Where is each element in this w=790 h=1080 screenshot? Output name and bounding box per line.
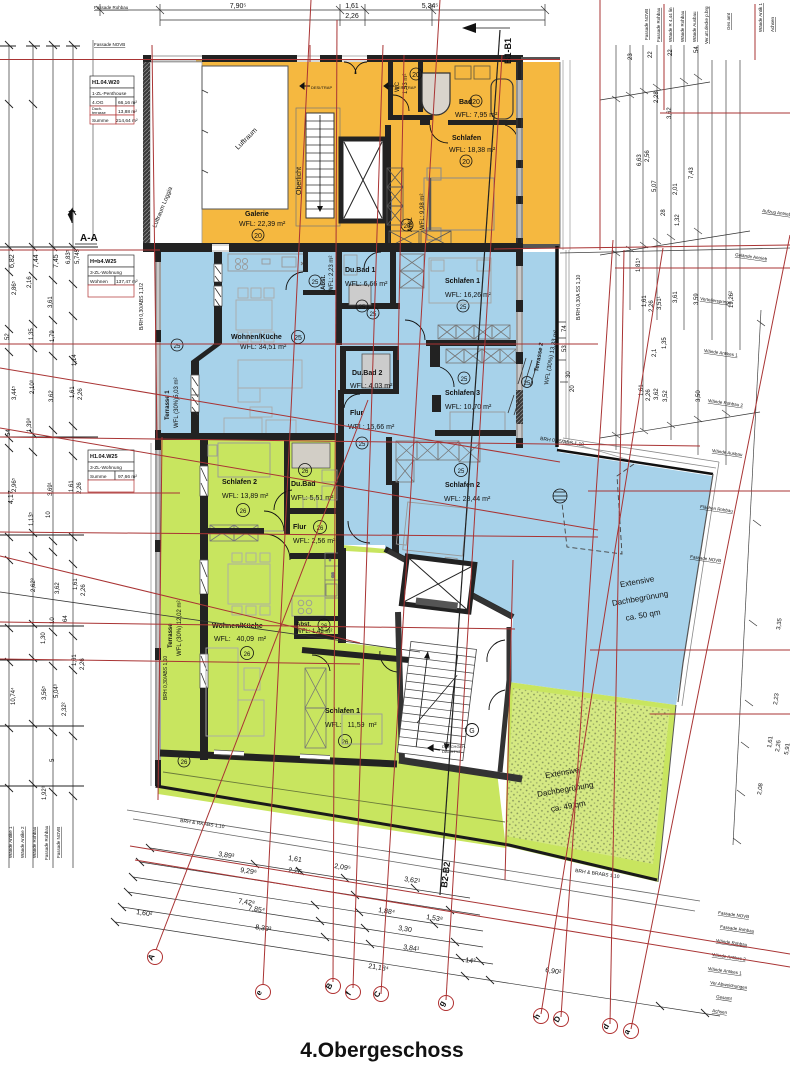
svg-text:97,66 m²: 97,66 m² xyxy=(118,474,137,480)
svg-text:WFL: 9,98 m²: WFL: 9,98 m² xyxy=(420,194,426,230)
svg-text:2,26: 2,26 xyxy=(345,13,359,20)
svg-text:28: 28 xyxy=(661,209,667,216)
svg-text:WFL: 22,39 m²: WFL: 22,39 m² xyxy=(239,221,286,228)
svg-text:3,44⁵: 3,44⁵ xyxy=(11,385,18,400)
svg-text:WFL: 11,59 m²: WFL: 11,59 m² xyxy=(325,722,377,729)
svg-text:1,39⁸: 1,39⁸ xyxy=(26,417,33,432)
svg-text:1,61: 1,61 xyxy=(69,480,75,492)
svg-text:5,04⁹: 5,04⁹ xyxy=(53,683,60,698)
svg-text:B1-B1: B1-B1 xyxy=(503,38,513,64)
svg-text:3,50: 3,50 xyxy=(696,390,702,402)
svg-text:26: 26 xyxy=(240,509,247,515)
svg-text:Abst.: Abst. xyxy=(321,275,327,290)
svg-text:Fassade Rohbau: Fassade Rohbau xyxy=(656,7,661,42)
svg-text:3,56⁵: 3,56⁵ xyxy=(41,685,48,700)
svg-text:25: 25 xyxy=(312,280,319,286)
svg-text:Galerie: Galerie xyxy=(245,211,269,218)
svg-text:3-ZL-Wohnung: 3-ZL-Wohnung xyxy=(90,465,122,471)
svg-text:Terrasse: Terrasse xyxy=(168,623,174,648)
svg-text:2,56: 2,56 xyxy=(645,150,651,162)
svg-text:G: G xyxy=(469,728,474,735)
svg-text:25: 25 xyxy=(458,469,465,475)
svg-text:6,82: 6,82 xyxy=(9,254,16,268)
svg-text:WFL: 10,70 m²: WFL: 10,70 m² xyxy=(445,404,492,411)
svg-text:Wände Antike 2: Wände Antike 2 xyxy=(20,826,25,858)
svg-text:20: 20 xyxy=(404,224,411,230)
svg-text:Schlafen: Schlafen xyxy=(452,135,481,142)
svg-text:Wände Rohbau: Wände Rohbau xyxy=(32,826,37,858)
svg-text:Du.Bad: Du.Bad xyxy=(291,481,316,488)
svg-text:Wände Rohbau: Wände Rohbau xyxy=(680,10,685,42)
svg-text:Flur: Flur xyxy=(293,524,306,531)
svg-text:WFL: 2,23 m²: WFL: 2,23 m² xyxy=(329,256,335,292)
svg-text:20: 20 xyxy=(570,385,576,392)
svg-text:Du.Bad 2: Du.Bad 2 xyxy=(352,370,382,377)
svg-text:26: 26 xyxy=(244,652,251,658)
svg-text:Fassade NOVB: Fassade NOVB xyxy=(94,42,125,47)
svg-text:DESI/TRAP: DESI/TRAP xyxy=(395,85,416,90)
svg-text:7,90⁵: 7,90⁵ xyxy=(230,3,247,10)
svg-text:B/RH 0,30A SS 1,10: B/RH 0,30A SS 1,10 xyxy=(576,274,582,320)
svg-text:2,10⁹: 2,10⁹ xyxy=(29,379,36,394)
svg-text:WFL: 16,26 m²: WFL: 16,26 m² xyxy=(445,292,492,299)
svg-text:66,16 m²: 66,16 m² xyxy=(118,100,137,106)
svg-text:H1.04.W25: H1.04.W25 xyxy=(90,454,118,460)
svg-text:1,61: 1,61 xyxy=(345,3,359,10)
svg-text:20: 20 xyxy=(472,99,480,106)
svg-text:1,14: 1,14 xyxy=(72,354,78,366)
svg-text:5,745: 5,745 xyxy=(75,248,81,264)
svg-text:WFL (30%) 12,02 m²: WFL (30%) 12,02 m² xyxy=(177,601,183,656)
svg-text:3,61: 3,61 xyxy=(673,291,679,303)
svg-text:26: 26 xyxy=(181,760,188,766)
svg-text:WFL (30%)5,03 m²: WFL (30%)5,03 m² xyxy=(174,378,180,428)
svg-text:WFL: 4,03 m²: WFL: 4,03 m² xyxy=(350,383,393,390)
svg-text:137,47 m²: 137,47 m² xyxy=(116,279,138,285)
svg-text:1,61: 1,61 xyxy=(73,578,79,590)
svg-text:1,81⁵: 1,81⁵ xyxy=(635,257,642,272)
svg-text:WFL: 6,66 m²: WFL: 6,66 m² xyxy=(345,281,388,288)
svg-text:1,32: 1,32 xyxy=(675,214,681,226)
svg-text:*: * xyxy=(329,559,331,565)
svg-text:Schlafen 2: Schlafen 2 xyxy=(445,482,480,489)
svg-text:B/RH 0,30/ABS 1,1/2: B/RH 0,30/ABS 1,1/2 xyxy=(139,283,145,330)
svg-text:25: 25 xyxy=(359,305,366,311)
svg-text:5,91: 5,91 xyxy=(784,742,790,755)
svg-text:2,1: 2,1 xyxy=(652,348,658,357)
svg-text:52: 52 xyxy=(5,333,11,340)
svg-text:22: 22 xyxy=(668,49,674,56)
svg-text:WFL: 5,51 m²: WFL: 5,51 m² xyxy=(291,495,334,502)
svg-text:6,63: 6,63 xyxy=(637,154,643,166)
svg-text:1,35: 1,35 xyxy=(662,337,668,349)
svg-text:4.OG: 4.OG xyxy=(92,100,104,106)
svg-text:10: 10 xyxy=(46,511,52,518)
svg-text:20: 20 xyxy=(412,72,420,79)
svg-text:7,44: 7,44 xyxy=(33,254,40,268)
svg-text:DESI/TRAP: DESI/TRAP xyxy=(311,85,332,90)
svg-text:1-ZL-Penthouse: 1-ZL-Penthouse xyxy=(92,91,127,97)
svg-text:2,96⁵: 2,96⁵ xyxy=(11,477,18,492)
svg-text:Schlafen 1: Schlafen 1 xyxy=(445,278,480,285)
svg-text:3,51¹: 3,51¹ xyxy=(657,296,663,310)
svg-text:WFL: 40,09 m²: WFL: 40,09 m² xyxy=(214,636,267,643)
svg-text:2,32²: 2,32² xyxy=(62,702,68,716)
svg-text:Summe: Summe xyxy=(92,118,109,124)
svg-text:3,69¹: 3,69¹ xyxy=(48,482,54,496)
svg-text:Ver.att.decke p.brg: Ver.att.decke p.brg xyxy=(704,6,709,44)
svg-text:2,26: 2,26 xyxy=(81,584,87,596)
svg-text:Achsen: Achsen xyxy=(770,16,775,32)
svg-text:3-ZL-Wohnung: 3-ZL-Wohnung xyxy=(90,270,122,276)
svg-text:terrasse: terrasse xyxy=(92,111,106,115)
svg-text:5,34⁵: 5,34⁵ xyxy=(422,3,439,10)
svg-text:Wände Antik 1: Wände Antik 1 xyxy=(758,2,763,32)
svg-text:Wände Antike 1: Wände Antike 1 xyxy=(8,826,13,858)
svg-text:64: 64 xyxy=(63,615,69,622)
svg-text:WFL: 7,95 m²: WFL: 7,95 m² xyxy=(455,112,498,119)
svg-text:3,52: 3,52 xyxy=(663,390,669,402)
svg-text:3,62: 3,62 xyxy=(55,582,61,594)
svg-text:Terrasse 1: Terrasse 1 xyxy=(165,390,171,420)
svg-text:H1.04.W20: H1.04.W20 xyxy=(92,80,120,86)
svg-text:Wohnen/Küche: Wohnen/Küche xyxy=(212,623,263,630)
svg-text:2,62³: 2,62³ xyxy=(31,578,37,592)
svg-text:2,26: 2,26 xyxy=(80,658,86,670)
svg-text:H=b4.W25: H=b4.W25 xyxy=(90,259,116,265)
svg-text:1,92⁹: 1,92⁹ xyxy=(41,785,48,800)
svg-text:WFL: 18,38 m²: WFL: 18,38 m² xyxy=(449,147,496,154)
svg-text:Fassade NOVB: Fassade NOVB xyxy=(644,9,649,40)
svg-text:25: 25 xyxy=(294,335,302,342)
svg-text:Du.Bad 1: Du.Bad 1 xyxy=(345,267,375,274)
svg-text:Summe: Summe xyxy=(90,474,107,480)
svg-text:A-A: A-A xyxy=(80,233,98,244)
svg-text:3,59: 3,59 xyxy=(694,293,700,305)
svg-text:Wohnen/Küche: Wohnen/Küche xyxy=(231,334,282,341)
svg-text:1,79: 1,79 xyxy=(50,330,56,342)
svg-text:30: 30 xyxy=(566,371,572,378)
svg-text:3,62: 3,62 xyxy=(654,388,660,400)
svg-text:DACHTYP.: DACHTYP. xyxy=(442,749,462,754)
svg-text:214,64 m²: 214,64 m² xyxy=(116,118,138,124)
svg-text:2,26: 2,26 xyxy=(78,388,84,400)
svg-text:26: 26 xyxy=(342,740,349,746)
svg-text:5,07: 5,07 xyxy=(652,180,658,192)
svg-text:1,35: 1,35 xyxy=(29,328,35,340)
svg-text:1,61: 1,61 xyxy=(642,295,648,307)
svg-text:4.Obergeschoss: 4.Obergeschoss xyxy=(300,1039,463,1062)
svg-text:4,17: 4,17 xyxy=(8,490,15,504)
svg-text:22: 22 xyxy=(648,51,654,58)
svg-text:1,61: 1,61 xyxy=(70,386,76,398)
svg-text:2,16: 2,16 xyxy=(27,276,33,288)
svg-text:26: 26 xyxy=(302,469,309,475)
svg-text:25: 25 xyxy=(460,305,467,311)
svg-text:Schlafen 2: Schlafen 2 xyxy=(222,479,257,486)
svg-text:BRH 0,30/ABS 1,10: BRH 0,30/ABS 1,10 xyxy=(163,656,169,700)
svg-text:Fassade Rohbau: Fassade Rohbau xyxy=(44,825,49,860)
svg-text:6,83⁵: 6,83⁵ xyxy=(65,249,72,264)
svg-text:54: 54 xyxy=(694,46,700,53)
svg-text:2,26: 2,26 xyxy=(77,482,83,494)
svg-text:13,88 m²: 13,88 m² xyxy=(118,109,137,115)
svg-text:20: 20 xyxy=(254,233,262,240)
svg-text:25: 25 xyxy=(174,344,181,350)
svg-text:3,62: 3,62 xyxy=(49,390,55,402)
svg-text:2,26: 2,26 xyxy=(646,389,652,401)
svg-text:74: 74 xyxy=(562,325,568,332)
svg-text:23: 23 xyxy=(628,53,634,60)
svg-text:25: 25 xyxy=(370,312,377,318)
svg-text:Ges amt: Ges amt xyxy=(726,12,731,30)
svg-text:Abst.: Abst. xyxy=(296,622,311,628)
svg-text:3,61: 3,61 xyxy=(48,296,54,308)
svg-text:1,13⁵: 1,13⁵ xyxy=(28,511,35,526)
svg-text:2,28: 2,28 xyxy=(654,91,660,103)
svg-text:53: 53 xyxy=(562,345,568,352)
svg-text:7,45: 7,45 xyxy=(53,254,60,268)
svg-text:Wohnen: Wohnen xyxy=(90,279,108,285)
svg-text:Wände R 4,44 lin: Wände R 4,44 lin xyxy=(668,7,673,42)
svg-text:20: 20 xyxy=(462,159,470,166)
svg-text:WFL: 34,51 m²: WFL: 34,51 m² xyxy=(240,344,287,351)
svg-text:25: 25 xyxy=(359,442,366,448)
svg-text:7,43: 7,43 xyxy=(689,167,695,179)
svg-text:WFL: 13,89 m²: WFL: 13,89 m² xyxy=(222,493,269,500)
svg-text:Wände Ausbau: Wände Ausbau xyxy=(692,11,697,42)
svg-text:10,74⁴: 10,74⁴ xyxy=(10,687,17,705)
svg-text:2,01: 2,01 xyxy=(673,183,679,195)
svg-text:1,30: 1,30 xyxy=(41,632,47,644)
svg-text:2,86⁵: 2,86⁵ xyxy=(11,280,18,295)
svg-text:25: 25 xyxy=(461,377,468,383)
svg-text:Fassade NOVB: Fassade NOVB xyxy=(56,827,61,858)
